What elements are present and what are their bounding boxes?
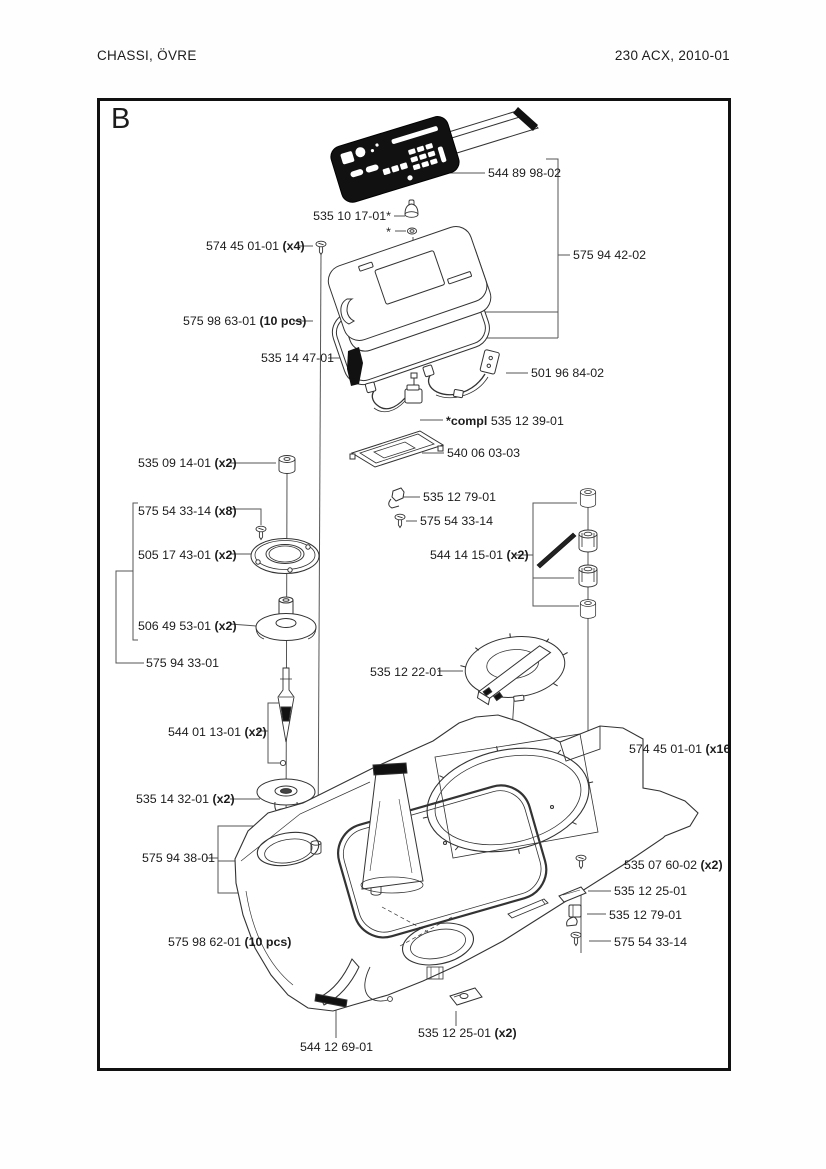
part-label: 505 17 43-01(x2) [138, 548, 237, 562]
part-label: 574 45 01-01(x4) [206, 239, 305, 253]
exploded-diagram: 544 89 98-02 535 10 17-01* * 574 45 01-0… [100, 101, 728, 1068]
clip-upper-drawing [389, 488, 404, 508]
screw-icon [316, 241, 326, 254]
part-label: 535 12 79-01 [423, 490, 496, 504]
part-label: 535 12 79-01 [609, 908, 682, 922]
part-label: 575 54 33-14(x8) [138, 504, 237, 518]
cover-plate-drawing [450, 988, 482, 1005]
part-label: *compl535 12 39-01 [446, 414, 564, 428]
frame-plate-drawing [350, 431, 443, 467]
part-label: 535 14 32-01(x2) [136, 792, 235, 806]
screw-icon [395, 514, 405, 527]
part-label: 574 45 01-01(x16) [629, 742, 728, 756]
part-label: 544 01 13-01(x2) [168, 725, 267, 739]
page-title: CHASSI, ÖVRE [97, 48, 197, 63]
clip-lower-drawing [567, 905, 581, 926]
part-label: 544 12 69-01 [300, 1040, 373, 1054]
spacer-cylinder-drawing [279, 456, 295, 474]
part-label: 540 06 03-03 [447, 446, 520, 460]
part-label: 535 12 22-01 [370, 665, 443, 679]
bushing-drawing [256, 597, 316, 641]
part-label: 575 94 38-01 [142, 851, 215, 865]
manual-page: CHASSI, ÖVRE 230 ACX, 2010-01 B [0, 0, 826, 1169]
part-label: 501 96 84-02 [531, 366, 604, 380]
part-label: 575 94 33-01 [146, 656, 219, 670]
part-label: 575 98 62-01(10 pcs) [168, 935, 291, 949]
part-label: 544 14 15-01(x2) [430, 548, 529, 562]
part-label: 575 94 42-02 [573, 248, 646, 262]
part-label: 575 54 33-14 [420, 514, 493, 528]
part-label: * [386, 225, 391, 239]
dial-cover-drawing [457, 627, 572, 708]
part-label: 535 14 47-01 [261, 351, 334, 365]
model-reference: 230 ACX, 2010-01 [615, 48, 730, 63]
screw-icon [256, 526, 266, 539]
stop-knob-drawing [405, 200, 418, 234]
figure-letter: B [111, 103, 130, 136]
screw-icon [571, 932, 581, 945]
part-label: 575 54 33-14 [614, 935, 687, 949]
part-label: 535 12 25-01(x2) [418, 1026, 517, 1040]
part-label: 575 98 63-01(10 pcs) [183, 314, 306, 328]
part-label: 535 09 14-01(x2) [138, 456, 237, 470]
keypad-panel-drawing [328, 107, 538, 205]
part-label: 535 07 60-02(x2) [624, 858, 723, 872]
part-label: 535 12 25-01 [614, 884, 687, 898]
part-label: 506 49 53-01(x2) [138, 619, 237, 633]
part-label: 544 89 98-02 [488, 166, 561, 180]
part-label: 535 10 17-01* [313, 209, 391, 223]
bearing-ring-drawing [251, 539, 319, 574]
exploded-view-frame: B [97, 98, 731, 1071]
